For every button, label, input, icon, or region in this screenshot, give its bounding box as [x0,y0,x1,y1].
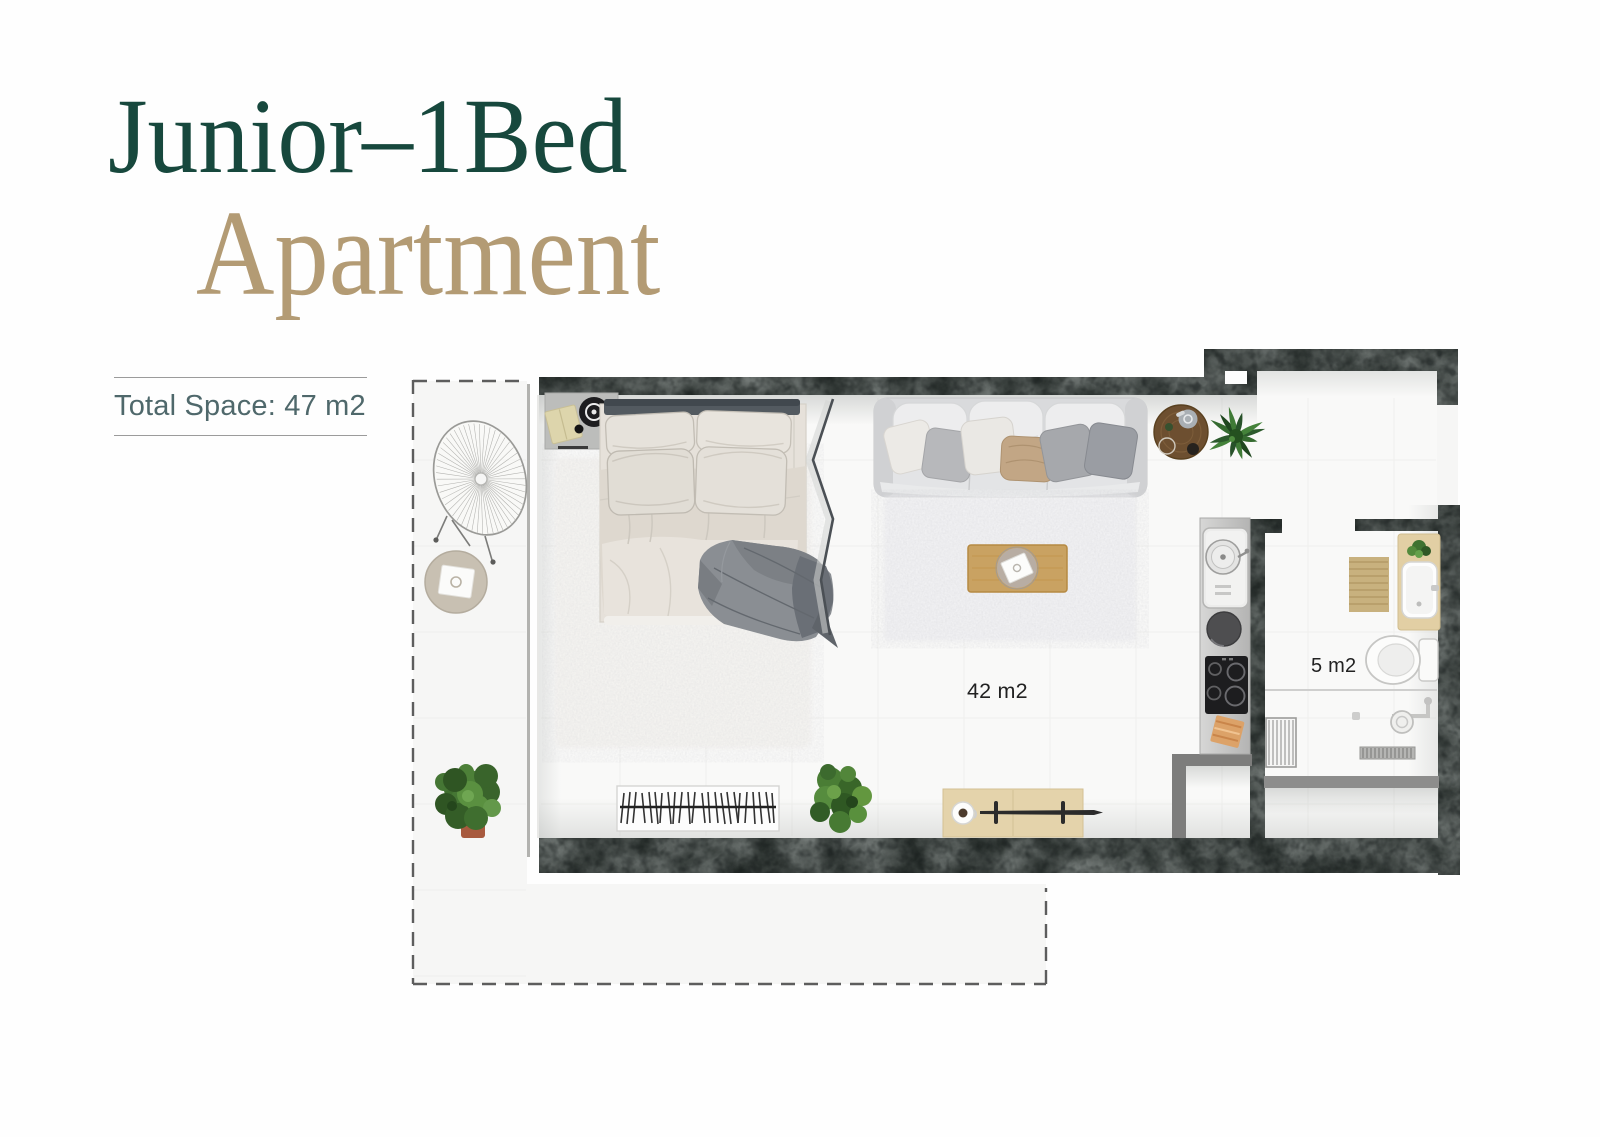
svg-text:42 m2: 42 m2 [967,679,1028,703]
svg-text:5 m2: 5 m2 [1311,655,1356,677]
